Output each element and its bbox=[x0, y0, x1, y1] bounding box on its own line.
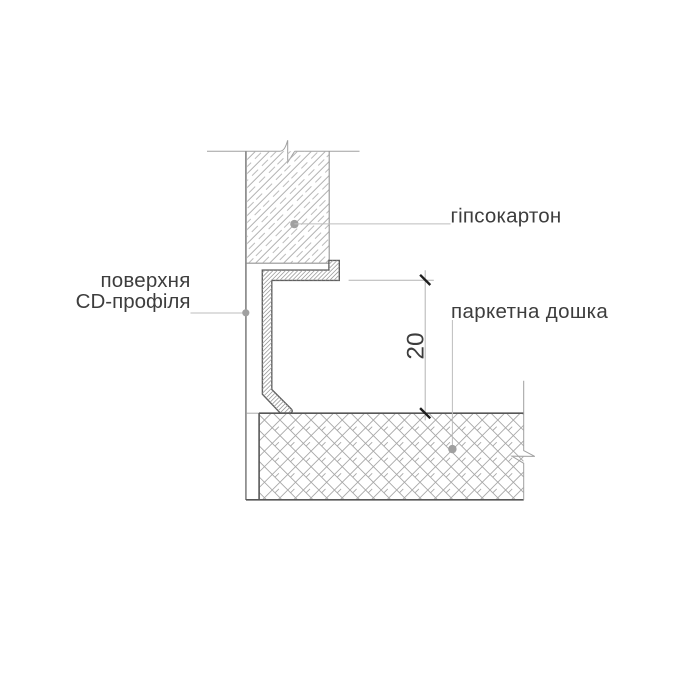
svg-text:CD-профіля: CD-профіля bbox=[76, 290, 191, 313]
svg-text:поверхня: поверхня bbox=[100, 269, 190, 292]
svg-text:паркетна дошка: паркетна дошка bbox=[451, 300, 608, 323]
svg-text:гіпсокартон: гіпсокартон bbox=[451, 205, 562, 228]
